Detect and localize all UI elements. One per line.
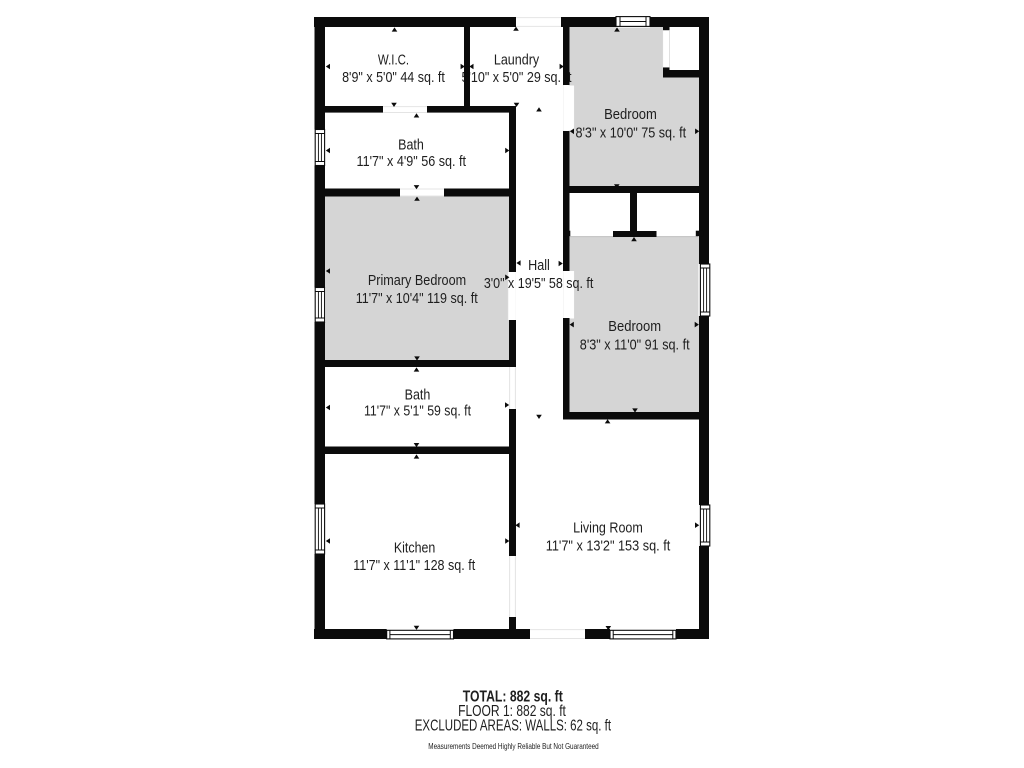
svg-text:Bedroom: Bedroom: [604, 106, 657, 123]
svg-text:3'0" x 19'5" 58 sq. ft: 3'0" x 19'5" 58 sq. ft: [484, 275, 594, 292]
svg-text:11'7" x 4'9" 56 sq. ft: 11'7" x 4'9" 56 sq. ft: [357, 153, 467, 170]
svg-text:Hall: Hall: [528, 257, 550, 274]
svg-text:Measurements Deemed Highly Rel: Measurements Deemed Highly Reliable But …: [428, 741, 599, 751]
svg-text:W.I.C.: W.I.C.: [378, 52, 409, 69]
svg-text:Primary Bedroom: Primary Bedroom: [368, 272, 466, 289]
svg-text:8'3" x 11'0" 91 sq. ft: 8'3" x 11'0" 91 sq. ft: [580, 337, 690, 354]
svg-text:Bath: Bath: [405, 386, 431, 403]
svg-text:11'7" x 5'1" 59 sq. ft: 11'7" x 5'1" 59 sq. ft: [364, 403, 472, 420]
svg-text:8'3" x 10'0" 75 sq. ft: 8'3" x 10'0" 75 sq. ft: [576, 125, 687, 142]
svg-text:8'9" x 5'0" 44 sq. ft: 8'9" x 5'0" 44 sq. ft: [342, 69, 445, 86]
svg-text:5'10" x 5'0" 29 sq. ft: 5'10" x 5'0" 29 sq. ft: [462, 69, 573, 86]
svg-text:EXCLUDED AREAS: WALLS: 62 sq.: EXCLUDED AREAS: WALLS: 62 sq. ft: [415, 718, 612, 735]
svg-text:Laundry: Laundry: [494, 52, 540, 69]
svg-text:11'7" x 13'2" 153 sq. ft: 11'7" x 13'2" 153 sq. ft: [546, 538, 671, 555]
svg-text:11'7" x 10'4" 119 sq. ft: 11'7" x 10'4" 119 sq. ft: [356, 290, 479, 307]
svg-text:11'7" x 11'1" 128 sq. ft: 11'7" x 11'1" 128 sq. ft: [353, 557, 476, 574]
svg-text:Living Room: Living Room: [573, 519, 643, 536]
svg-text:Bedroom: Bedroom: [608, 318, 661, 335]
svg-text:Kitchen: Kitchen: [394, 540, 436, 557]
svg-text:Bath: Bath: [398, 137, 424, 154]
